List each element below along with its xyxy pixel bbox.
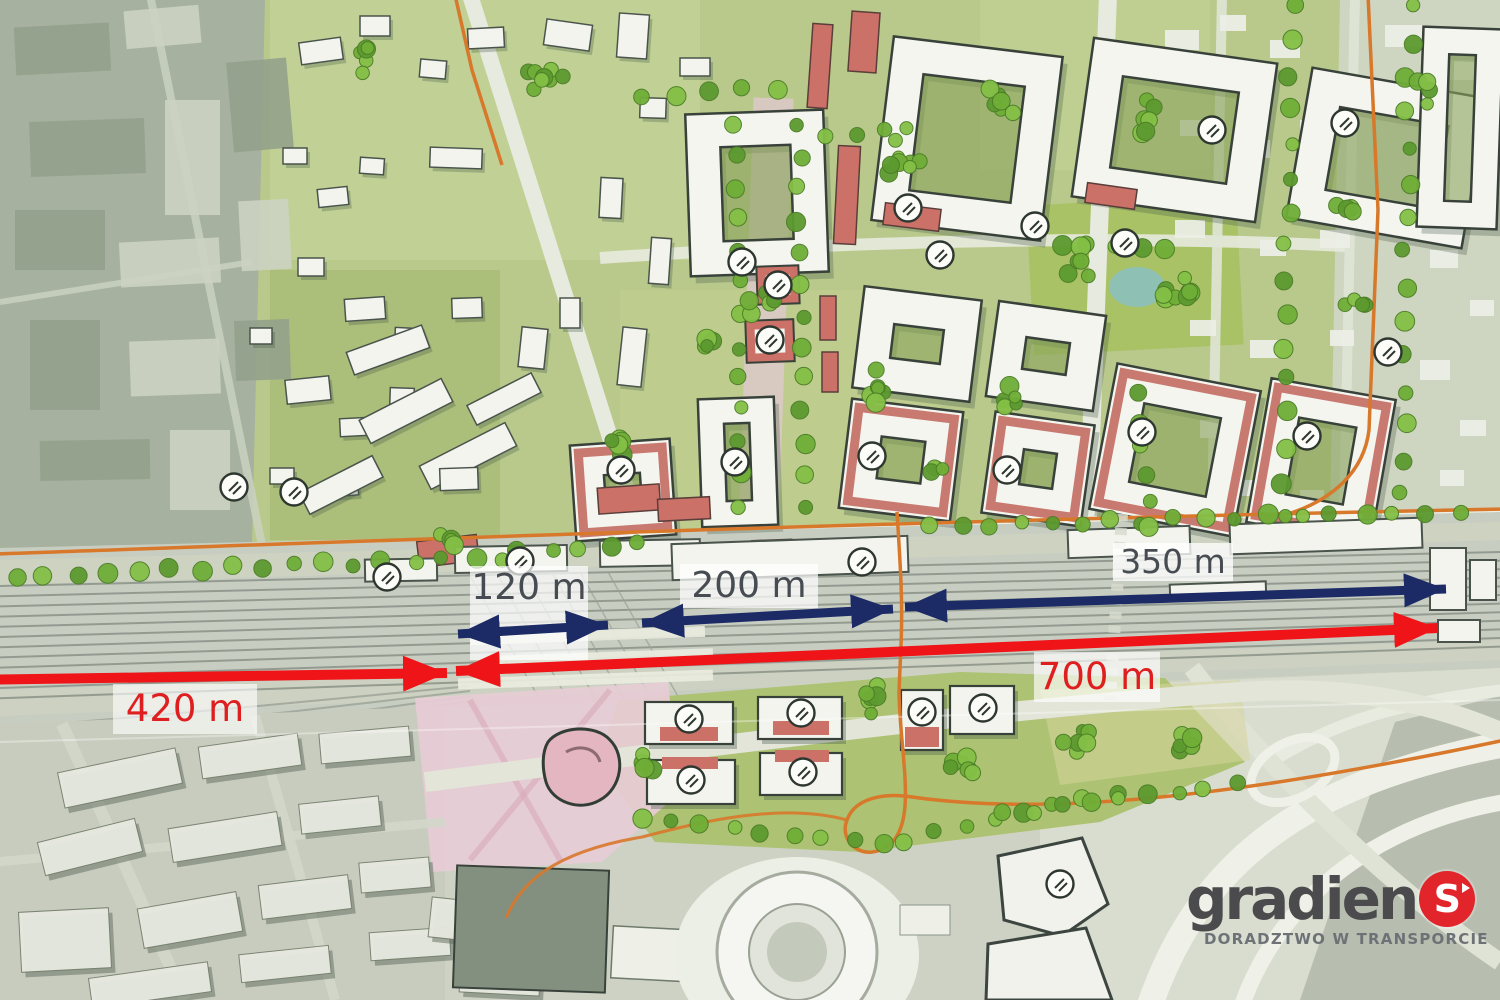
- tree: [796, 434, 815, 453]
- house: [298, 258, 324, 276]
- tree: [667, 87, 686, 106]
- tree: [690, 815, 708, 833]
- tree: [1056, 734, 1072, 750]
- tree: [1165, 510, 1181, 526]
- tree: [866, 393, 885, 412]
- slab-building: [1430, 548, 1466, 610]
- tree: [1286, 138, 1299, 151]
- slab-building: [1470, 560, 1496, 600]
- tree: [818, 129, 833, 144]
- tree: [1228, 513, 1241, 526]
- tree: [895, 834, 912, 851]
- tree: [791, 401, 809, 419]
- red-building: [822, 352, 838, 392]
- tree: [33, 567, 51, 585]
- tree: [1139, 517, 1158, 536]
- tree: [1075, 517, 1090, 532]
- measurement-label-120m: 120 m: [470, 566, 588, 660]
- tree: [872, 382, 885, 395]
- house: [430, 147, 483, 169]
- tree: [1005, 105, 1021, 121]
- tree: [900, 122, 913, 135]
- tree: [9, 569, 26, 586]
- tree: [1395, 453, 1412, 470]
- tree: [1055, 797, 1071, 813]
- tree: [1392, 485, 1407, 500]
- aerial-building: [40, 439, 151, 481]
- house: [1460, 420, 1486, 436]
- tree: [555, 69, 570, 84]
- tree: [1399, 386, 1413, 400]
- logo-wordmark: gradien: [1186, 870, 1416, 928]
- house: [599, 177, 623, 218]
- aerial-building: [238, 199, 292, 272]
- tree: [994, 804, 1011, 821]
- tree: [287, 556, 301, 570]
- tree: [1275, 272, 1293, 290]
- tree: [726, 180, 744, 198]
- tree: [799, 500, 813, 514]
- tree: [732, 343, 745, 356]
- tree: [859, 686, 874, 701]
- measurement-label-350m: 350 m: [1113, 543, 1233, 581]
- tree: [1385, 506, 1399, 520]
- tree: [1406, 0, 1419, 12]
- house: [1440, 470, 1464, 486]
- tree: [865, 707, 877, 719]
- tree: [1276, 236, 1291, 251]
- tree: [1197, 509, 1215, 527]
- tree: [769, 80, 788, 99]
- tree: [570, 541, 586, 557]
- house: [1330, 330, 1354, 346]
- tree: [791, 244, 808, 261]
- house: [648, 237, 671, 284]
- house: [1165, 30, 1199, 50]
- tree: [1112, 792, 1125, 805]
- house: [1190, 320, 1216, 336]
- tree: [1454, 505, 1469, 520]
- tree: [725, 116, 742, 133]
- tree: [877, 122, 891, 136]
- tree: [787, 828, 803, 844]
- tree: [1396, 102, 1414, 120]
- tree: [1397, 414, 1416, 433]
- tree: [731, 500, 745, 514]
- teardrop-pavilion: [543, 729, 620, 805]
- tree: [361, 42, 374, 55]
- tree: [1155, 287, 1172, 304]
- aerial-building: [15, 210, 105, 270]
- house: [617, 327, 647, 387]
- tree: [1277, 439, 1296, 458]
- map-canvas: [0, 0, 1500, 1000]
- tree: [926, 824, 941, 839]
- tree: [850, 128, 865, 143]
- house: [359, 157, 384, 175]
- tree: [1182, 728, 1201, 747]
- tree: [1082, 793, 1101, 812]
- tree: [1101, 511, 1118, 528]
- courtyard-garden: [1019, 449, 1057, 489]
- tree: [547, 544, 561, 558]
- tree: [313, 552, 333, 572]
- tree: [1155, 239, 1174, 258]
- logo-badge: S: [1419, 871, 1475, 927]
- tree: [751, 825, 768, 842]
- tree: [735, 401, 748, 414]
- tree: [1395, 311, 1415, 331]
- tree: [965, 765, 981, 781]
- stadium-court: [767, 922, 827, 982]
- tree: [434, 551, 447, 564]
- tree: [70, 567, 87, 584]
- courtyard-garden: [909, 74, 1024, 203]
- house: [617, 13, 650, 59]
- tree: [730, 368, 746, 384]
- tree: [700, 82, 719, 101]
- tree: [728, 821, 742, 835]
- tree: [789, 178, 805, 194]
- tree: [792, 338, 811, 357]
- tree: [740, 292, 758, 310]
- aerial-building: [30, 320, 100, 410]
- tree: [1279, 68, 1297, 86]
- tree: [1073, 253, 1089, 269]
- house: [285, 376, 331, 404]
- tree: [936, 463, 949, 476]
- house: [543, 19, 592, 51]
- tree: [1279, 510, 1292, 523]
- tree: [1296, 509, 1309, 522]
- tree: [1403, 142, 1416, 155]
- tree: [1195, 781, 1211, 797]
- tree: [1284, 172, 1298, 186]
- tree: [1282, 204, 1300, 222]
- gradiens-logo: gradien S DORADZTWO W TRANSPORCIE: [1186, 870, 1489, 948]
- tree: [98, 563, 118, 583]
- tree: [410, 555, 424, 569]
- tenement-block: [18, 908, 111, 973]
- aerial-building: [123, 5, 201, 49]
- tree: [1417, 506, 1434, 523]
- slab-building: [1230, 518, 1423, 555]
- tree: [848, 832, 863, 847]
- tree: [193, 561, 213, 581]
- tree: [224, 556, 242, 574]
- tree: [1230, 775, 1246, 791]
- tree: [1258, 504, 1278, 524]
- aerial-building: [226, 58, 294, 153]
- tree: [1404, 35, 1422, 53]
- tree: [346, 559, 360, 573]
- house: [344, 297, 385, 322]
- tree: [1395, 242, 1410, 257]
- slab-building: [1438, 620, 1480, 642]
- tree: [1009, 391, 1021, 403]
- red-building: [597, 484, 661, 514]
- tree: [790, 118, 803, 131]
- tree: [794, 150, 810, 166]
- logo-tagline: DORADZTWO W TRANSPORCIE: [1204, 930, 1489, 948]
- tree: [733, 80, 749, 96]
- tree: [903, 160, 916, 173]
- logo-row: gradien S: [1186, 870, 1489, 928]
- tree: [1287, 0, 1304, 13]
- tree: [1279, 369, 1294, 384]
- tree: [605, 434, 619, 448]
- tree: [1138, 467, 1155, 484]
- tree: [955, 517, 972, 534]
- tree: [730, 434, 745, 449]
- tree: [981, 519, 997, 535]
- slab-building: [1170, 581, 1267, 600]
- tree: [1344, 203, 1361, 220]
- tree: [445, 536, 464, 555]
- red-building: [848, 11, 880, 73]
- tree: [1355, 297, 1369, 311]
- house: [560, 298, 580, 328]
- tree: [796, 466, 814, 484]
- tree: [1027, 806, 1042, 821]
- tree: [786, 212, 805, 231]
- tree: [1400, 209, 1416, 225]
- tree: [1081, 269, 1095, 283]
- house: [680, 58, 710, 76]
- tree: [882, 156, 899, 173]
- house: [1175, 220, 1205, 238]
- red-building: [820, 296, 836, 340]
- tree: [630, 535, 645, 550]
- tree: [159, 559, 178, 578]
- house: [1420, 360, 1450, 380]
- house: [250, 328, 272, 344]
- red-building: [657, 497, 710, 522]
- aerial-building: [119, 237, 221, 287]
- house: [283, 148, 307, 164]
- tree: [1130, 384, 1147, 401]
- tree: [1173, 786, 1186, 799]
- tree: [797, 310, 811, 324]
- aerial-building: [165, 100, 220, 215]
- house: [1220, 15, 1246, 31]
- aerial-building: [129, 338, 221, 396]
- tree: [356, 66, 369, 79]
- tree: [535, 73, 550, 88]
- masterplan-screenshot: 120 m 200 m 350 m 420 m 700 m gradien S …: [0, 0, 1500, 1000]
- logo-badge-letter: S: [1434, 880, 1461, 918]
- house: [518, 327, 548, 369]
- logo-arrow-icon: [1462, 883, 1470, 893]
- tree: [130, 562, 149, 581]
- house: [468, 27, 505, 49]
- tree: [633, 809, 652, 828]
- house: [360, 16, 390, 36]
- tree: [1053, 236, 1073, 256]
- tree: [254, 560, 272, 578]
- aerial-building: [29, 118, 146, 177]
- measurement-label-420m: 420 m: [113, 684, 257, 734]
- tree: [1274, 339, 1293, 358]
- tree: [1421, 98, 1433, 110]
- tree: [875, 834, 893, 852]
- tree: [634, 89, 650, 105]
- house: [452, 297, 483, 318]
- tree: [1143, 494, 1157, 508]
- tree: [602, 537, 621, 556]
- house: [317, 186, 349, 207]
- tree: [1271, 474, 1291, 494]
- tree: [729, 209, 746, 226]
- tree: [1398, 279, 1416, 297]
- house: [1470, 300, 1494, 316]
- measurement-label-700m: 700 m: [1034, 652, 1160, 702]
- tree: [1178, 271, 1191, 284]
- tree: [1419, 73, 1436, 90]
- tree: [921, 517, 938, 534]
- tree: [868, 362, 884, 378]
- tree: [889, 133, 903, 147]
- tree: [635, 758, 654, 777]
- aerial-building: [14, 23, 111, 76]
- tree: [791, 276, 809, 294]
- measurement-label-200m: 200 m: [680, 564, 818, 608]
- dark-roof-building: [453, 865, 609, 992]
- tree: [664, 814, 678, 828]
- tree: [1078, 734, 1096, 752]
- red-roof-section: [905, 727, 939, 747]
- tree: [795, 367, 813, 385]
- tree: [1046, 516, 1059, 529]
- building: [900, 905, 950, 935]
- tree: [1278, 305, 1297, 324]
- red-building: [833, 145, 860, 244]
- tree: [960, 820, 974, 834]
- tree: [1182, 284, 1198, 300]
- tree: [1138, 785, 1157, 804]
- tree: [1321, 506, 1336, 521]
- tree: [1015, 516, 1028, 529]
- tree: [729, 147, 745, 163]
- tree: [1283, 30, 1302, 49]
- tree: [1402, 176, 1420, 194]
- tree: [1281, 98, 1300, 117]
- tree: [1358, 505, 1377, 524]
- tree: [1278, 401, 1297, 420]
- tree: [1137, 122, 1155, 140]
- tree: [943, 760, 958, 775]
- tree: [813, 830, 828, 845]
- house: [440, 467, 479, 490]
- house: [419, 59, 446, 79]
- aerial-building: [170, 430, 230, 510]
- tenement-block: [359, 857, 431, 893]
- tree: [701, 340, 714, 353]
